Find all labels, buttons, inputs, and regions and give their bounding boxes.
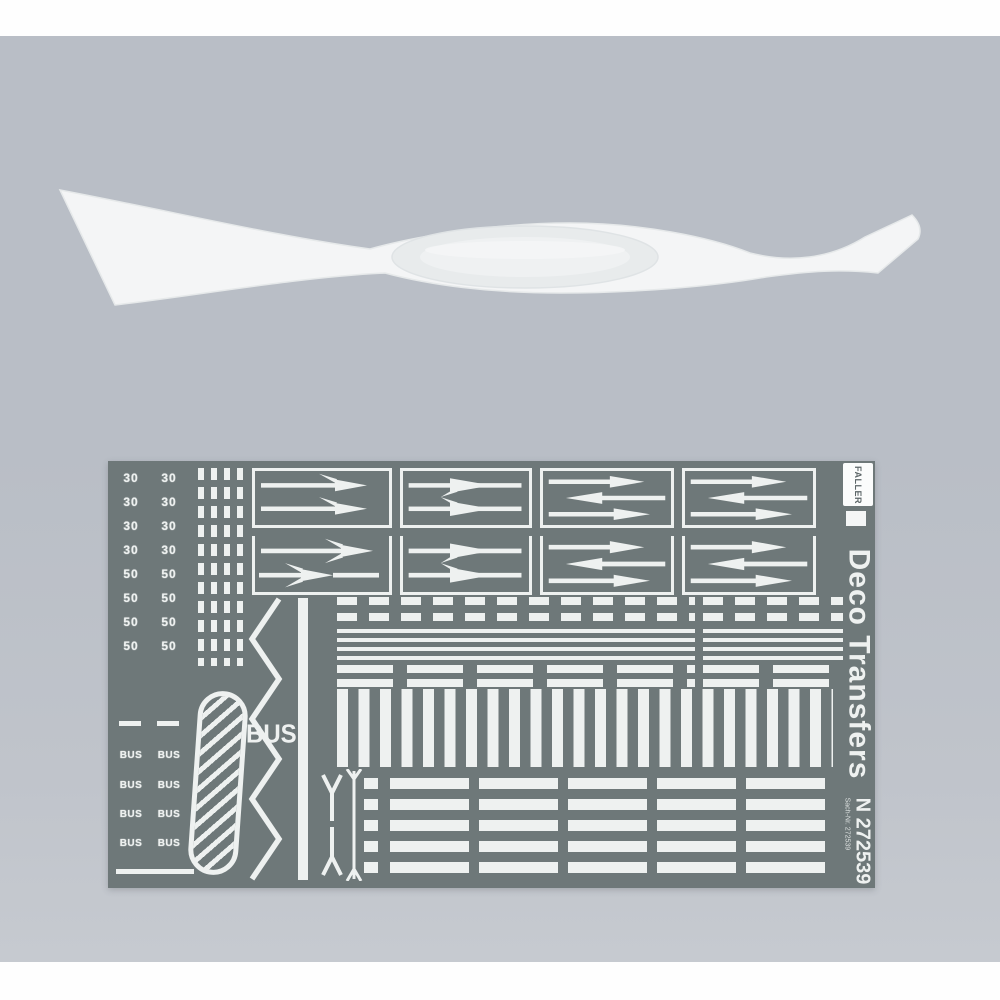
arrow-box-mid-branch-pair	[400, 468, 532, 528]
tiny-label: BUS	[114, 808, 148, 822]
tiny-label: BUS	[152, 837, 186, 851]
dashed-line-strip	[703, 597, 843, 605]
photo-background: 30303030303030305050505050505050BUSBUSBU…	[0, 36, 1000, 962]
dash-mark	[157, 721, 179, 726]
bus-label-row: BUSBUS	[114, 837, 196, 855]
product-title-text: Deco Transfers	[841, 549, 875, 780]
tiny-label: 50	[114, 615, 148, 629]
bus-label-row: BUSBUS	[114, 808, 196, 826]
product-photo: 30303030303030305050505050505050BUSBUSBU…	[0, 0, 1000, 1000]
arrow-box-triple-straight	[540, 468, 674, 528]
tiny-label: BUS	[152, 779, 186, 793]
tiny-label: BUS	[152, 749, 186, 763]
lane-arrows	[685, 471, 813, 525]
arrow-box-triple-straight	[682, 468, 816, 528]
tiny-label: BUS	[152, 808, 186, 822]
arrow-panel	[108, 461, 875, 601]
long-dash-strip	[337, 665, 695, 673]
item-number: N 272539	[850, 798, 873, 885]
crossing-bar-block	[568, 778, 647, 873]
crossing-bar-block	[657, 778, 736, 873]
crossing-bar-block	[746, 778, 825, 873]
long-dash-strip	[703, 665, 843, 673]
divider-dash-row	[114, 716, 196, 734]
bus-label-row: BUSBUS	[114, 779, 196, 797]
tool-grip-highlight	[425, 241, 625, 259]
dashed-line-strip	[703, 613, 843, 621]
arrow-box-mid-branch-pair	[400, 536, 532, 595]
solid-line-small	[116, 869, 194, 874]
lane-arrows	[543, 471, 671, 525]
solid-edge-line	[298, 598, 308, 880]
arrow-box-branch-pair-offset	[252, 536, 392, 595]
brand-logo: FALLER	[843, 463, 873, 506]
bus-label-row: BUSBUS	[114, 749, 196, 767]
dashed-line-strip	[337, 597, 695, 605]
lane-arrows	[255, 471, 389, 525]
item-number-block: N 272539 Sach-Nr. 272539	[824, 797, 892, 885]
short-bar-column	[364, 778, 378, 873]
brand-logo-mark	[846, 511, 866, 526]
long-dash-strip	[703, 679, 843, 687]
lane-arrows	[543, 536, 671, 592]
tiny-label: BUS	[114, 749, 148, 763]
decal-sheet: 30303030303030305050505050505050BUSBUSBU…	[108, 461, 875, 888]
item-subtext: Sach-Nr. 272539	[843, 798, 850, 885]
lane-arrows	[403, 536, 529, 592]
applicator-tool	[50, 173, 930, 323]
brand-logo-text: FALLER	[853, 466, 863, 504]
white-band-top	[0, 0, 1000, 36]
tiny-label: BUS	[114, 779, 148, 793]
lane-arrows	[255, 536, 389, 592]
lane-arrows	[403, 471, 529, 525]
speed-number-row: 5050	[114, 615, 196, 633]
traffic-island-hatched	[187, 689, 250, 876]
tiny-label: 50	[152, 615, 186, 629]
solid-line-strips	[703, 629, 843, 660]
white-band-bottom	[0, 962, 1000, 1000]
arrow-box-triple-straight	[540, 536, 674, 595]
arrow-box-triple-straight	[682, 536, 816, 595]
tiny-label: BUS	[114, 837, 148, 851]
dash-mark	[119, 721, 141, 726]
long-dash-strip	[337, 679, 695, 687]
dashed-line-strip	[337, 613, 695, 621]
zebra-crossing	[337, 689, 833, 767]
product-title: Deco Transfers	[826, 535, 890, 793]
speed-number-row: 5050	[114, 639, 196, 657]
merge-fork-arrows	[320, 769, 366, 881]
solid-line-strips	[337, 629, 695, 660]
crossing-bar-block	[390, 778, 469, 873]
bus-stop-label: BUS	[246, 720, 306, 752]
arrow-box-branch-pair	[252, 468, 392, 528]
tiny-label: 50	[152, 639, 186, 653]
crossing-bar-block	[479, 778, 558, 873]
tiny-label: 50	[114, 639, 148, 653]
lane-arrows	[685, 536, 813, 592]
